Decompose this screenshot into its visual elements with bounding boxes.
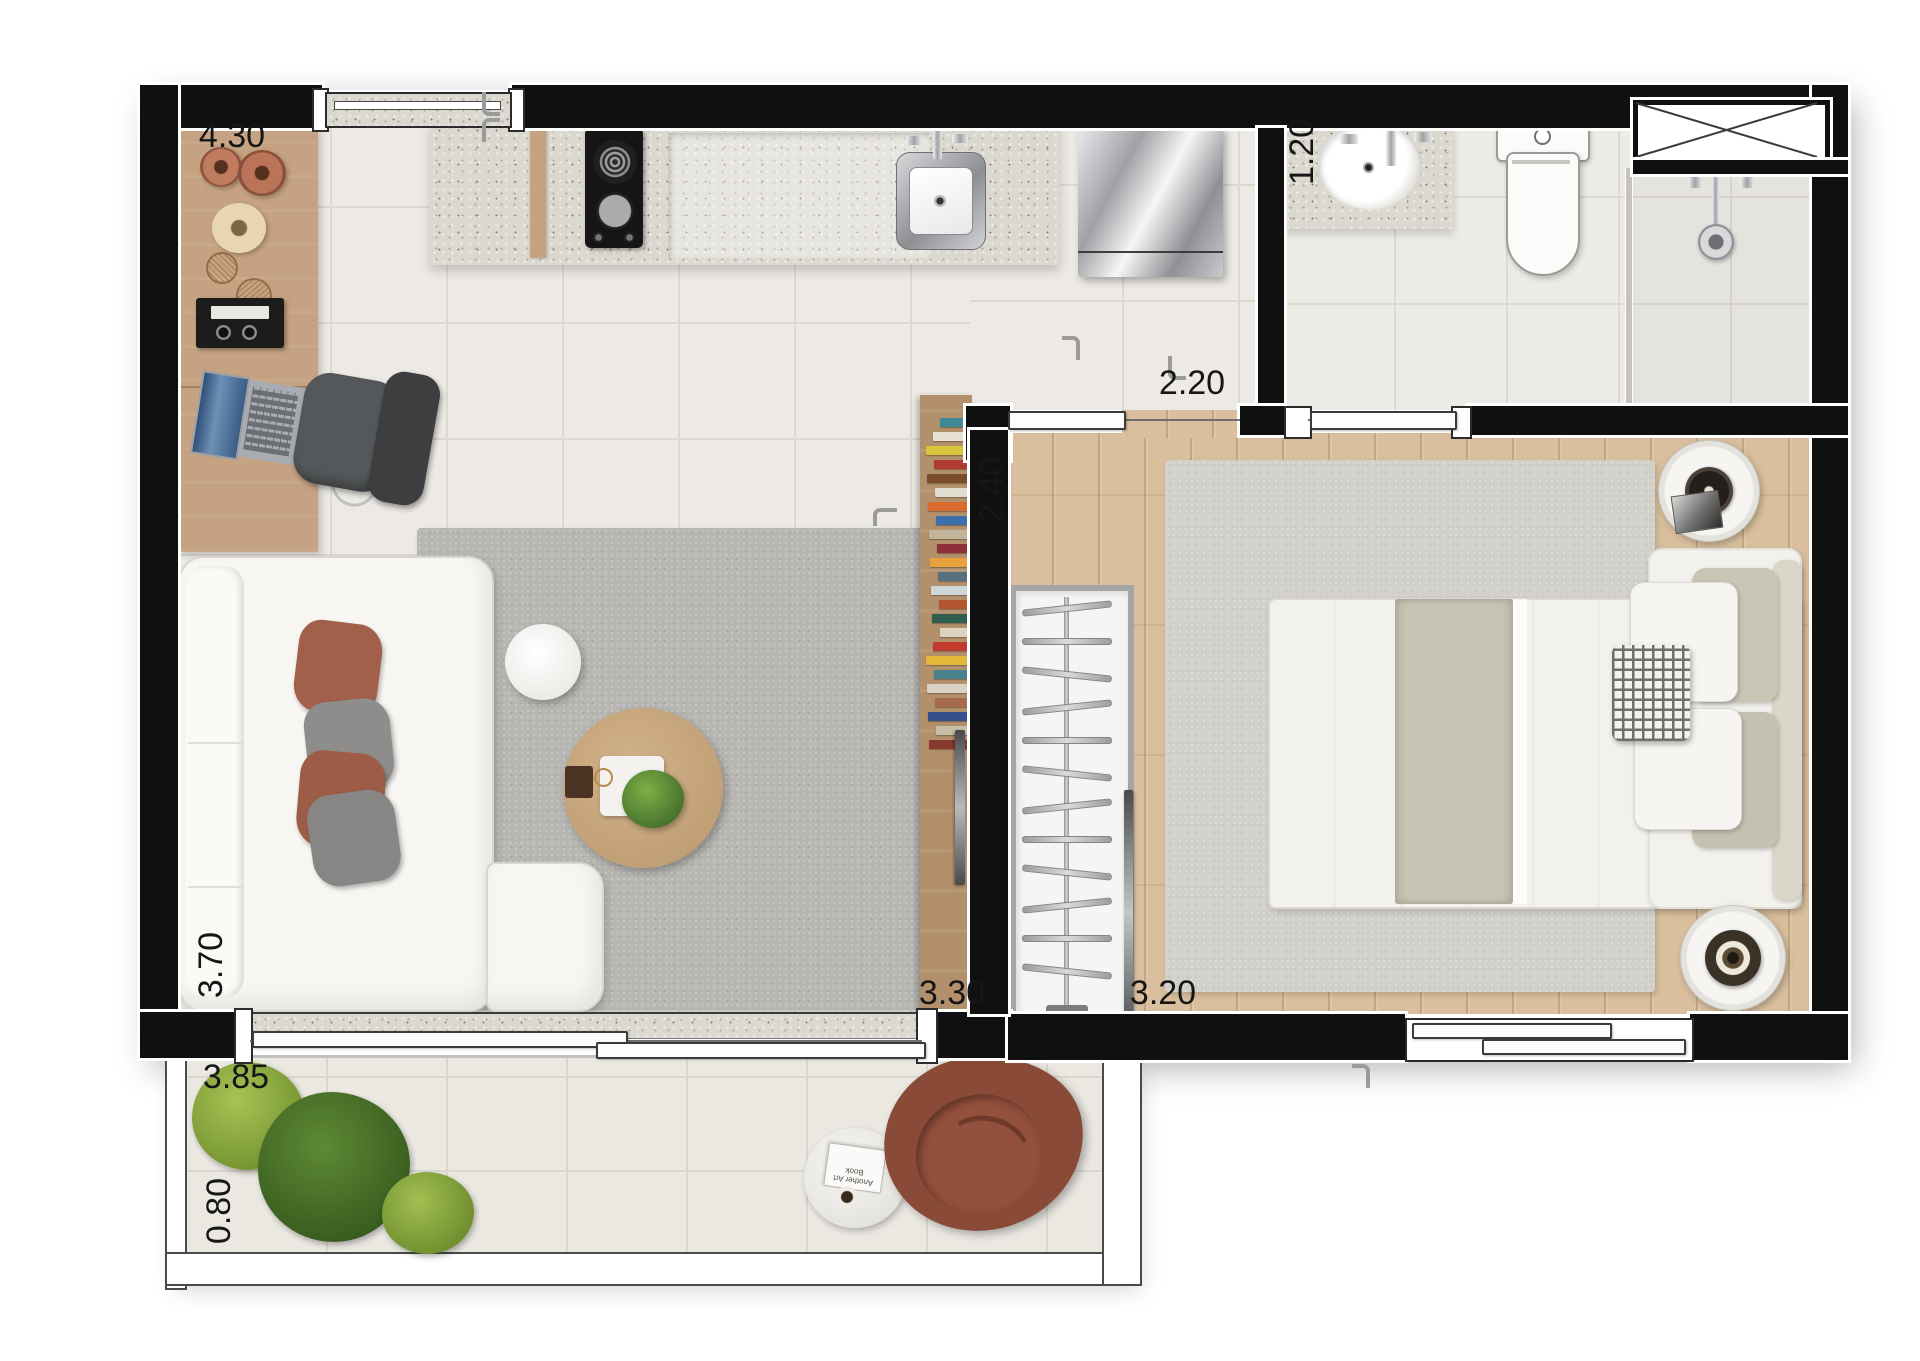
table-lamp bbox=[1705, 930, 1761, 986]
table-plant bbox=[622, 770, 684, 828]
closet-hanger-bar bbox=[1022, 798, 1112, 814]
wall-bedroom-bottom-right bbox=[1690, 1014, 1848, 1060]
closet-hanger-bar bbox=[1022, 666, 1112, 682]
balcony-table-cup bbox=[836, 1186, 858, 1208]
radio-label bbox=[211, 306, 269, 319]
wall-left bbox=[140, 85, 178, 1058]
kitchen-faucet-handle-left bbox=[906, 136, 922, 145]
sofa-back-seam bbox=[188, 886, 244, 888]
wall-hook bbox=[873, 508, 897, 526]
balcony-plant-light-2 bbox=[382, 1172, 474, 1254]
book-spine bbox=[927, 474, 970, 483]
coffee-table-white bbox=[505, 624, 581, 700]
wall-hook bbox=[1352, 1064, 1370, 1088]
album-cover bbox=[1671, 490, 1724, 534]
cooktop bbox=[585, 128, 643, 248]
floor-plan: Another Art Book bbox=[0, 0, 1920, 1361]
closet-hanger-bar bbox=[1022, 737, 1112, 744]
nightstand-top bbox=[1658, 440, 1760, 542]
closet-hanger-bar bbox=[1022, 638, 1112, 645]
wall-bath-bedroom bbox=[1468, 406, 1848, 435]
wall-hook bbox=[482, 118, 500, 142]
cooktop-burner-small bbox=[596, 192, 634, 230]
wall-hook bbox=[482, 92, 500, 116]
bedroom-door-threshold bbox=[1122, 410, 1240, 438]
balcony-door-leaf-right bbox=[596, 1042, 926, 1059]
tv-living bbox=[955, 730, 965, 885]
wall-hook bbox=[1062, 336, 1080, 360]
dimension-living-length: 3.30 bbox=[904, 976, 1000, 1010]
book-spine bbox=[926, 656, 970, 665]
shower-pipe-stub-left bbox=[1688, 172, 1702, 188]
balcony-book-title: Another Art Book bbox=[829, 1164, 879, 1189]
closet-hanger-bar bbox=[1022, 963, 1112, 979]
book-spine bbox=[926, 446, 970, 455]
book-spine bbox=[929, 530, 970, 539]
table-ring bbox=[594, 768, 613, 787]
closet-hanger-bar bbox=[1022, 935, 1112, 942]
decor-bowl-terracotta-2 bbox=[238, 150, 286, 196]
bath-door-leaf bbox=[1310, 411, 1457, 430]
book-spine bbox=[940, 628, 970, 637]
kitchen-faucet bbox=[933, 126, 942, 160]
wall-bath-divider bbox=[1258, 128, 1284, 410]
kitchen-side-panel bbox=[530, 122, 546, 258]
radio-knob bbox=[216, 325, 231, 340]
cooktop-knob bbox=[593, 232, 604, 243]
closet-hanger-bar bbox=[1022, 765, 1112, 781]
bath-faucet bbox=[1386, 124, 1396, 166]
closet-hanger-bar bbox=[1022, 699, 1112, 715]
shaft-cross-icon bbox=[1633, 100, 1820, 160]
radio-knob bbox=[242, 325, 257, 340]
dimension-balcony-length: 3.85 bbox=[188, 1060, 284, 1094]
dimension-balcony-depth: 0.80 bbox=[202, 1163, 236, 1259]
kitchen-faucet-handle-right bbox=[952, 134, 968, 143]
decor-bowl-cream bbox=[212, 203, 266, 253]
book-spine bbox=[933, 642, 970, 651]
wall-living-bottom-mid bbox=[930, 1012, 1010, 1058]
sofa-pillow-gray-2 bbox=[304, 786, 404, 889]
kitchen-sink-drain bbox=[934, 195, 946, 207]
window-top-glass bbox=[334, 101, 501, 110]
closet-hanger-bar bbox=[1022, 836, 1112, 843]
book-spine bbox=[928, 712, 970, 721]
bed-sheet-fold bbox=[1513, 599, 1527, 904]
bath-faucet-handle-left bbox=[1340, 134, 1358, 144]
bed-cushion-patterned bbox=[1612, 645, 1690, 741]
nightstand-bottom bbox=[1680, 905, 1786, 1011]
dimension-bedroom-depth: 2.40 bbox=[975, 442, 1009, 538]
book-spine bbox=[937, 544, 970, 553]
toilet-seat-line bbox=[1512, 160, 1570, 164]
cooktop-knob bbox=[624, 232, 635, 243]
bed-blanket bbox=[1395, 599, 1513, 904]
bedroom-door-leaf bbox=[1008, 411, 1126, 430]
closet-hangers bbox=[1016, 591, 1116, 1024]
bedroom-window-pane-right bbox=[1482, 1039, 1686, 1055]
book-spine bbox=[939, 600, 970, 609]
refrigerator-door-line bbox=[1078, 251, 1223, 253]
shower-arm bbox=[1712, 176, 1719, 228]
bath-door-jamb-left bbox=[1284, 406, 1312, 439]
toilet-bowl bbox=[1506, 152, 1580, 276]
book-spine bbox=[933, 432, 970, 441]
balcony-door-jamb-left bbox=[234, 1008, 253, 1064]
shower-head bbox=[1698, 224, 1734, 260]
dimension-bedroom-width: 3.20 bbox=[1115, 976, 1211, 1010]
cooktop-burner-large bbox=[593, 140, 637, 184]
book-spine bbox=[931, 586, 970, 595]
book-spine bbox=[932, 614, 970, 623]
shower-pipe-stub-right bbox=[1740, 172, 1754, 188]
table-box bbox=[565, 766, 593, 798]
dimension-kitchen-wall: 4.30 bbox=[184, 119, 280, 153]
book-spine bbox=[938, 572, 970, 581]
dimension-bathroom-width: 1.20 bbox=[1285, 104, 1319, 200]
book-spine bbox=[935, 488, 970, 497]
toilet-button bbox=[1534, 128, 1551, 145]
shower-glass-divider bbox=[1626, 168, 1632, 410]
balcony-table-book: Another Art Book bbox=[823, 1142, 887, 1194]
balcony-door-leaf-left bbox=[252, 1031, 628, 1048]
book-spine bbox=[927, 684, 970, 693]
book-spine bbox=[928, 502, 970, 511]
desk-radio bbox=[196, 298, 284, 348]
wall-under-shaft bbox=[1633, 160, 1848, 174]
wall-living-bottom-left bbox=[140, 1012, 246, 1058]
dimension-living-depth: 3.70 bbox=[194, 917, 228, 1013]
book-spine bbox=[934, 460, 970, 469]
office-chair bbox=[281, 354, 453, 518]
book-spine bbox=[936, 516, 970, 525]
closet-hanger-bar bbox=[1022, 864, 1112, 880]
bedroom-window-pane-left bbox=[1412, 1023, 1612, 1039]
decor-wire-sphere-1 bbox=[206, 252, 238, 284]
closet-hanger-bar bbox=[1022, 600, 1112, 616]
bath-sink-drain bbox=[1363, 162, 1374, 173]
book-spine bbox=[934, 670, 970, 679]
book-spine bbox=[930, 558, 970, 567]
balcony-railing-right bbox=[1102, 1058, 1142, 1286]
dimension-bathroom-length: 2.20 bbox=[1144, 366, 1240, 400]
closet bbox=[1010, 585, 1134, 1042]
wall-hall-t-block bbox=[1240, 406, 1284, 435]
book-spine bbox=[935, 698, 970, 707]
sofa-chaise bbox=[486, 862, 604, 1012]
sofa-back-seam bbox=[188, 742, 244, 744]
balcony-railing-bottom bbox=[165, 1252, 1142, 1286]
kitchen-sink bbox=[896, 152, 986, 250]
closet-hanger-bar bbox=[1022, 897, 1112, 913]
book-stack bbox=[920, 418, 972, 758]
wall-right bbox=[1812, 85, 1848, 1060]
refrigerator bbox=[1078, 127, 1223, 277]
bath-faucet-handle-right bbox=[1414, 132, 1432, 142]
wall-bedroom-bottom-left bbox=[1008, 1014, 1405, 1060]
countertop-inset bbox=[668, 133, 930, 259]
